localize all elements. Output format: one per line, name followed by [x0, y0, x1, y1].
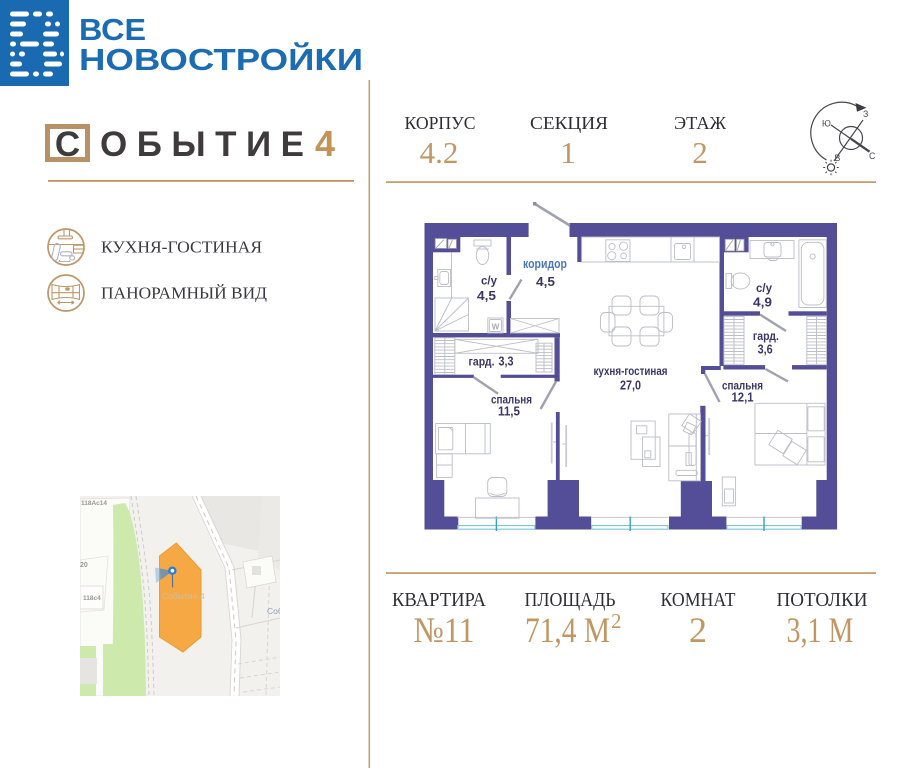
svg-text:2: 2	[611, 609, 622, 633]
svg-text:с/у: с/у	[481, 274, 497, 288]
svg-text:ПЛОЩАДЬ: ПЛОЩАДЬ	[525, 589, 616, 611]
svg-text:2: 2	[692, 135, 708, 170]
svg-text:ЭТАЖ: ЭТАЖ	[674, 113, 727, 133]
svg-text:ОБЫТИЕ: ОБЫТИЕ	[100, 125, 304, 164]
svg-text:1: 1	[560, 135, 576, 170]
svg-text:71,4 М: 71,4 М	[525, 610, 610, 650]
svg-text:Соб: Соб	[267, 606, 283, 616]
svg-text:НОВОСТРОЙКИ: НОВОСТРОЙКИ	[79, 41, 363, 77]
svg-text:118Ас14: 118Ас14	[81, 500, 107, 507]
svg-text:11,5: 11,5	[498, 405, 520, 419]
svg-text:В: В	[835, 153, 841, 163]
svg-text:Ю: Ю	[822, 119, 831, 129]
svg-text:Событие-4: Событие-4	[162, 591, 205, 601]
svg-text:КОМНАТ: КОМНАТ	[661, 589, 736, 611]
svg-text:№11: №11	[414, 610, 475, 650]
svg-text:W: W	[492, 323, 500, 332]
svg-text:4,5: 4,5	[536, 275, 555, 289]
svg-text:КВАРТИРА: КВАРТИРА	[392, 589, 487, 611]
svg-text:4,9: 4,9	[753, 296, 772, 310]
svg-text:С: С	[55, 125, 80, 164]
svg-text:ПОТОЛКИ: ПОТОЛКИ	[777, 589, 868, 611]
svg-text:4,5: 4,5	[477, 289, 496, 303]
svg-text:СЕКЦИЯ: СЕКЦИЯ	[530, 113, 608, 133]
svg-text:С: С	[869, 151, 876, 161]
svg-text:КУХНЯ-ГОСТИНАЯ: КУХНЯ-ГОСТИНАЯ	[101, 238, 262, 257]
svg-text:27,0: 27,0	[620, 378, 641, 393]
svg-text:118с4: 118с4	[83, 595, 101, 602]
svg-text:20: 20	[80, 562, 88, 569]
svg-text:3,1 М: 3,1 М	[787, 610, 854, 650]
svg-text:кухня-гостиная: кухня-гостиная	[594, 364, 668, 378]
svg-text:4: 4	[315, 123, 335, 164]
svg-text:с/у: с/у	[756, 281, 772, 295]
svg-text:3,6: 3,6	[758, 343, 773, 357]
svg-text:2: 2	[689, 610, 707, 650]
svg-text:12,1: 12,1	[732, 391, 754, 405]
svg-text:3,3: 3,3	[499, 355, 514, 369]
svg-text:4.2: 4.2	[420, 135, 459, 170]
svg-text:ПАНОРАМНЫЙ ВИД: ПАНОРАМНЫЙ ВИД	[101, 284, 267, 303]
svg-text:гард.: гард.	[753, 329, 779, 343]
svg-text:КОРПУС: КОРПУС	[405, 113, 476, 133]
svg-text:З: З	[863, 109, 868, 119]
svg-text:гард.: гард.	[469, 355, 495, 369]
svg-text:коридор: коридор	[523, 257, 567, 271]
